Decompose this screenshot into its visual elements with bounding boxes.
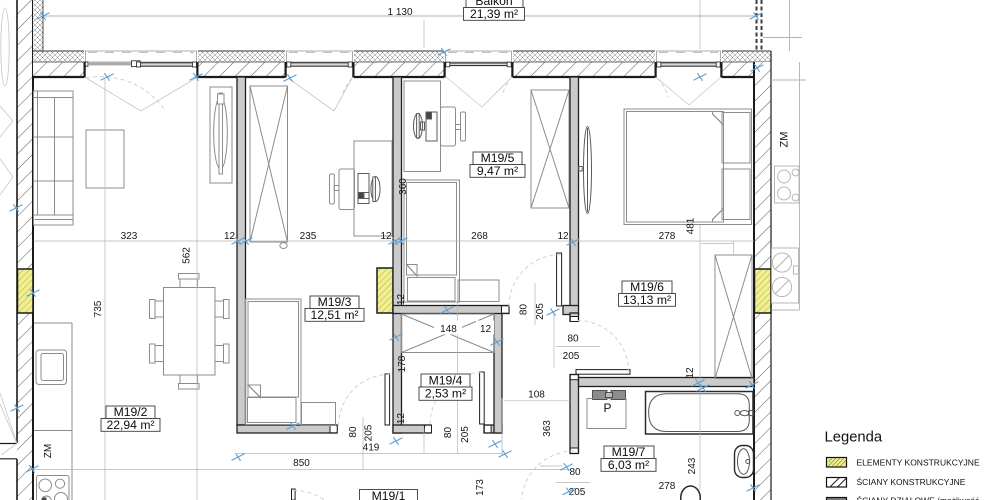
svg-text:268: 268 [471,231,488,242]
svg-text:205: 205 [569,487,586,498]
svg-text:323: 323 [121,231,138,242]
svg-text:178: 178 [397,355,408,372]
svg-text:21,39 m²: 21,39 m² [470,7,518,21]
svg-text:850: 850 [293,458,310,469]
svg-text:ELEMENTY KONSTRUKCYJNE: ELEMENTY KONSTRUKCYJNE [857,458,980,468]
svg-text:205: 205 [563,351,580,362]
svg-text:243: 243 [687,457,698,474]
svg-text:12: 12 [396,294,407,306]
svg-text:235: 235 [300,231,317,242]
svg-text:12,51 m²: 12,51 m² [310,308,358,322]
svg-text:12: 12 [480,324,492,335]
svg-text:6,03 m²: 6,03 m² [608,458,649,472]
svg-text:13,13 m²: 13,13 m² [623,293,671,307]
svg-text:481: 481 [686,217,697,234]
svg-text:278: 278 [659,231,676,242]
svg-text:419: 419 [363,443,380,454]
svg-text:ŚCIANY DZIAŁOWE (możliwość: ŚCIANY DZIAŁOWE (możliwość [857,495,980,500]
svg-text:80: 80 [443,427,454,439]
svg-text:ŚCIANY KONSTRUKCYJNE: ŚCIANY KONSTRUKCYJNE [857,476,966,487]
svg-text:9,47 m²: 9,47 m² [477,164,518,178]
svg-text:M19/1: M19/1 [372,489,406,500]
svg-text:80: 80 [567,334,579,345]
svg-text:ZM: ZM [43,444,54,458]
svg-text:205: 205 [364,424,375,441]
svg-text:22,94 m²: 22,94 m² [106,418,154,432]
svg-text:360: 360 [398,178,409,195]
svg-text:562: 562 [182,247,193,264]
svg-text:2,53 m²: 2,53 m² [425,387,466,401]
svg-text:80: 80 [348,426,359,438]
svg-text:278: 278 [659,481,676,492]
svg-text:205: 205 [535,303,546,320]
svg-text:108: 108 [528,390,545,401]
svg-text:80: 80 [569,467,581,478]
svg-text:1 130: 1 130 [387,7,412,18]
svg-text:12: 12 [224,231,236,242]
svg-text:205: 205 [460,426,471,443]
svg-text:735: 735 [93,300,104,317]
svg-text:12: 12 [396,413,407,425]
svg-text:173: 173 [475,479,486,496]
svg-text:ZM: ZM [779,132,791,148]
svg-text:Legenda: Legenda [825,430,883,446]
svg-text:12: 12 [685,367,696,379]
svg-text:363: 363 [542,420,553,437]
svg-text:12: 12 [380,231,392,242]
svg-text:P: P [603,401,611,415]
svg-text:148: 148 [440,324,457,335]
svg-text:12: 12 [557,231,569,242]
svg-text:M19/4: M19/4 [429,373,463,387]
svg-text:80: 80 [519,304,530,316]
